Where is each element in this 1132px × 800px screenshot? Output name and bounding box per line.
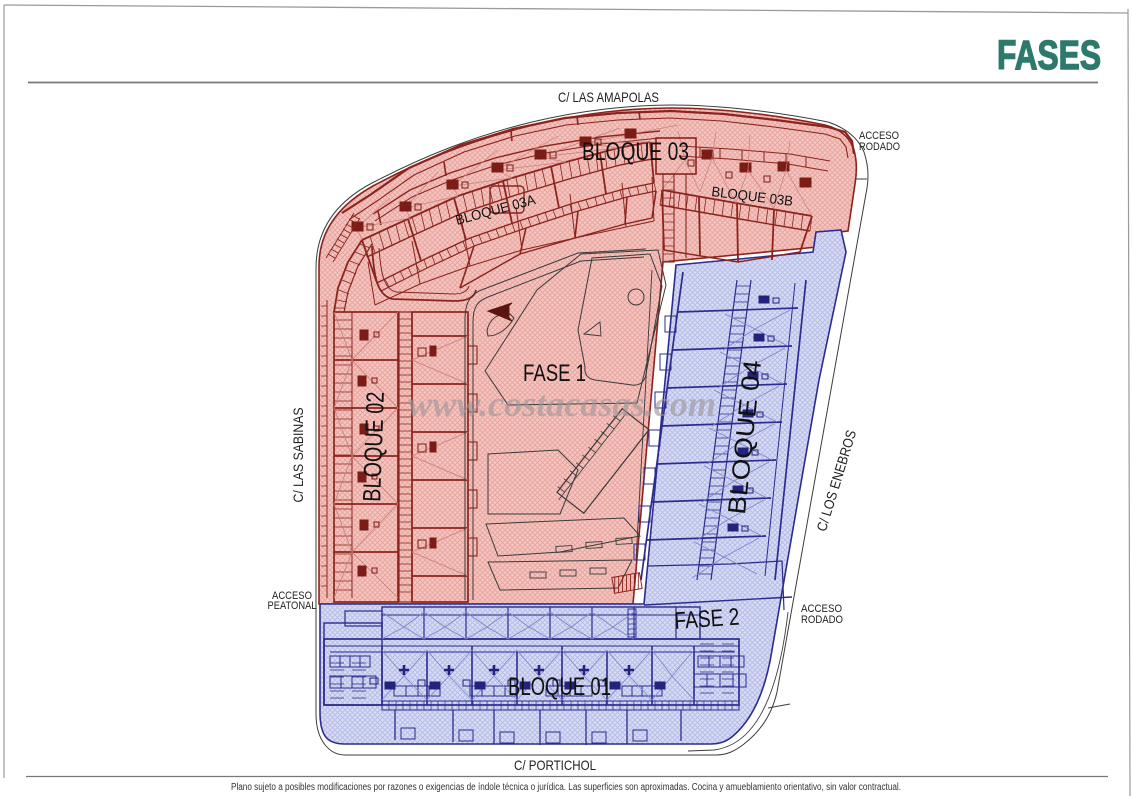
svg-text:FASES: FASES — [997, 32, 1101, 78]
svg-text:Plano sujeto a posibles modifi: Plano sujeto a posibles modificaciones p… — [231, 782, 901, 793]
svg-text:BLOQUE 03: BLOQUE 03 — [582, 138, 689, 166]
svg-text:FASE 2: FASE 2 — [674, 604, 741, 635]
svg-text:PEATONAL: PEATONAL — [268, 600, 317, 612]
svg-text:www.costacasas.com: www.costacasas.com — [408, 384, 716, 424]
svg-text:FASE 1: FASE 1 — [523, 360, 586, 387]
svg-text:C/ PORTICHOL: C/ PORTICHOL — [514, 757, 596, 773]
svg-text:BLOQUE 01: BLOQUE 01 — [508, 673, 611, 701]
svg-text:RODADO: RODADO — [801, 614, 843, 626]
svg-text:BLOQUE 02: BLOQUE 02 — [358, 391, 390, 502]
svg-text:C/ LAS SABINAS: C/ LAS SABINAS — [290, 408, 306, 503]
svg-text:RODADO: RODADO — [859, 141, 900, 153]
svg-text:C/ LAS AMAPOLAS: C/ LAS AMAPOLAS — [558, 89, 659, 105]
